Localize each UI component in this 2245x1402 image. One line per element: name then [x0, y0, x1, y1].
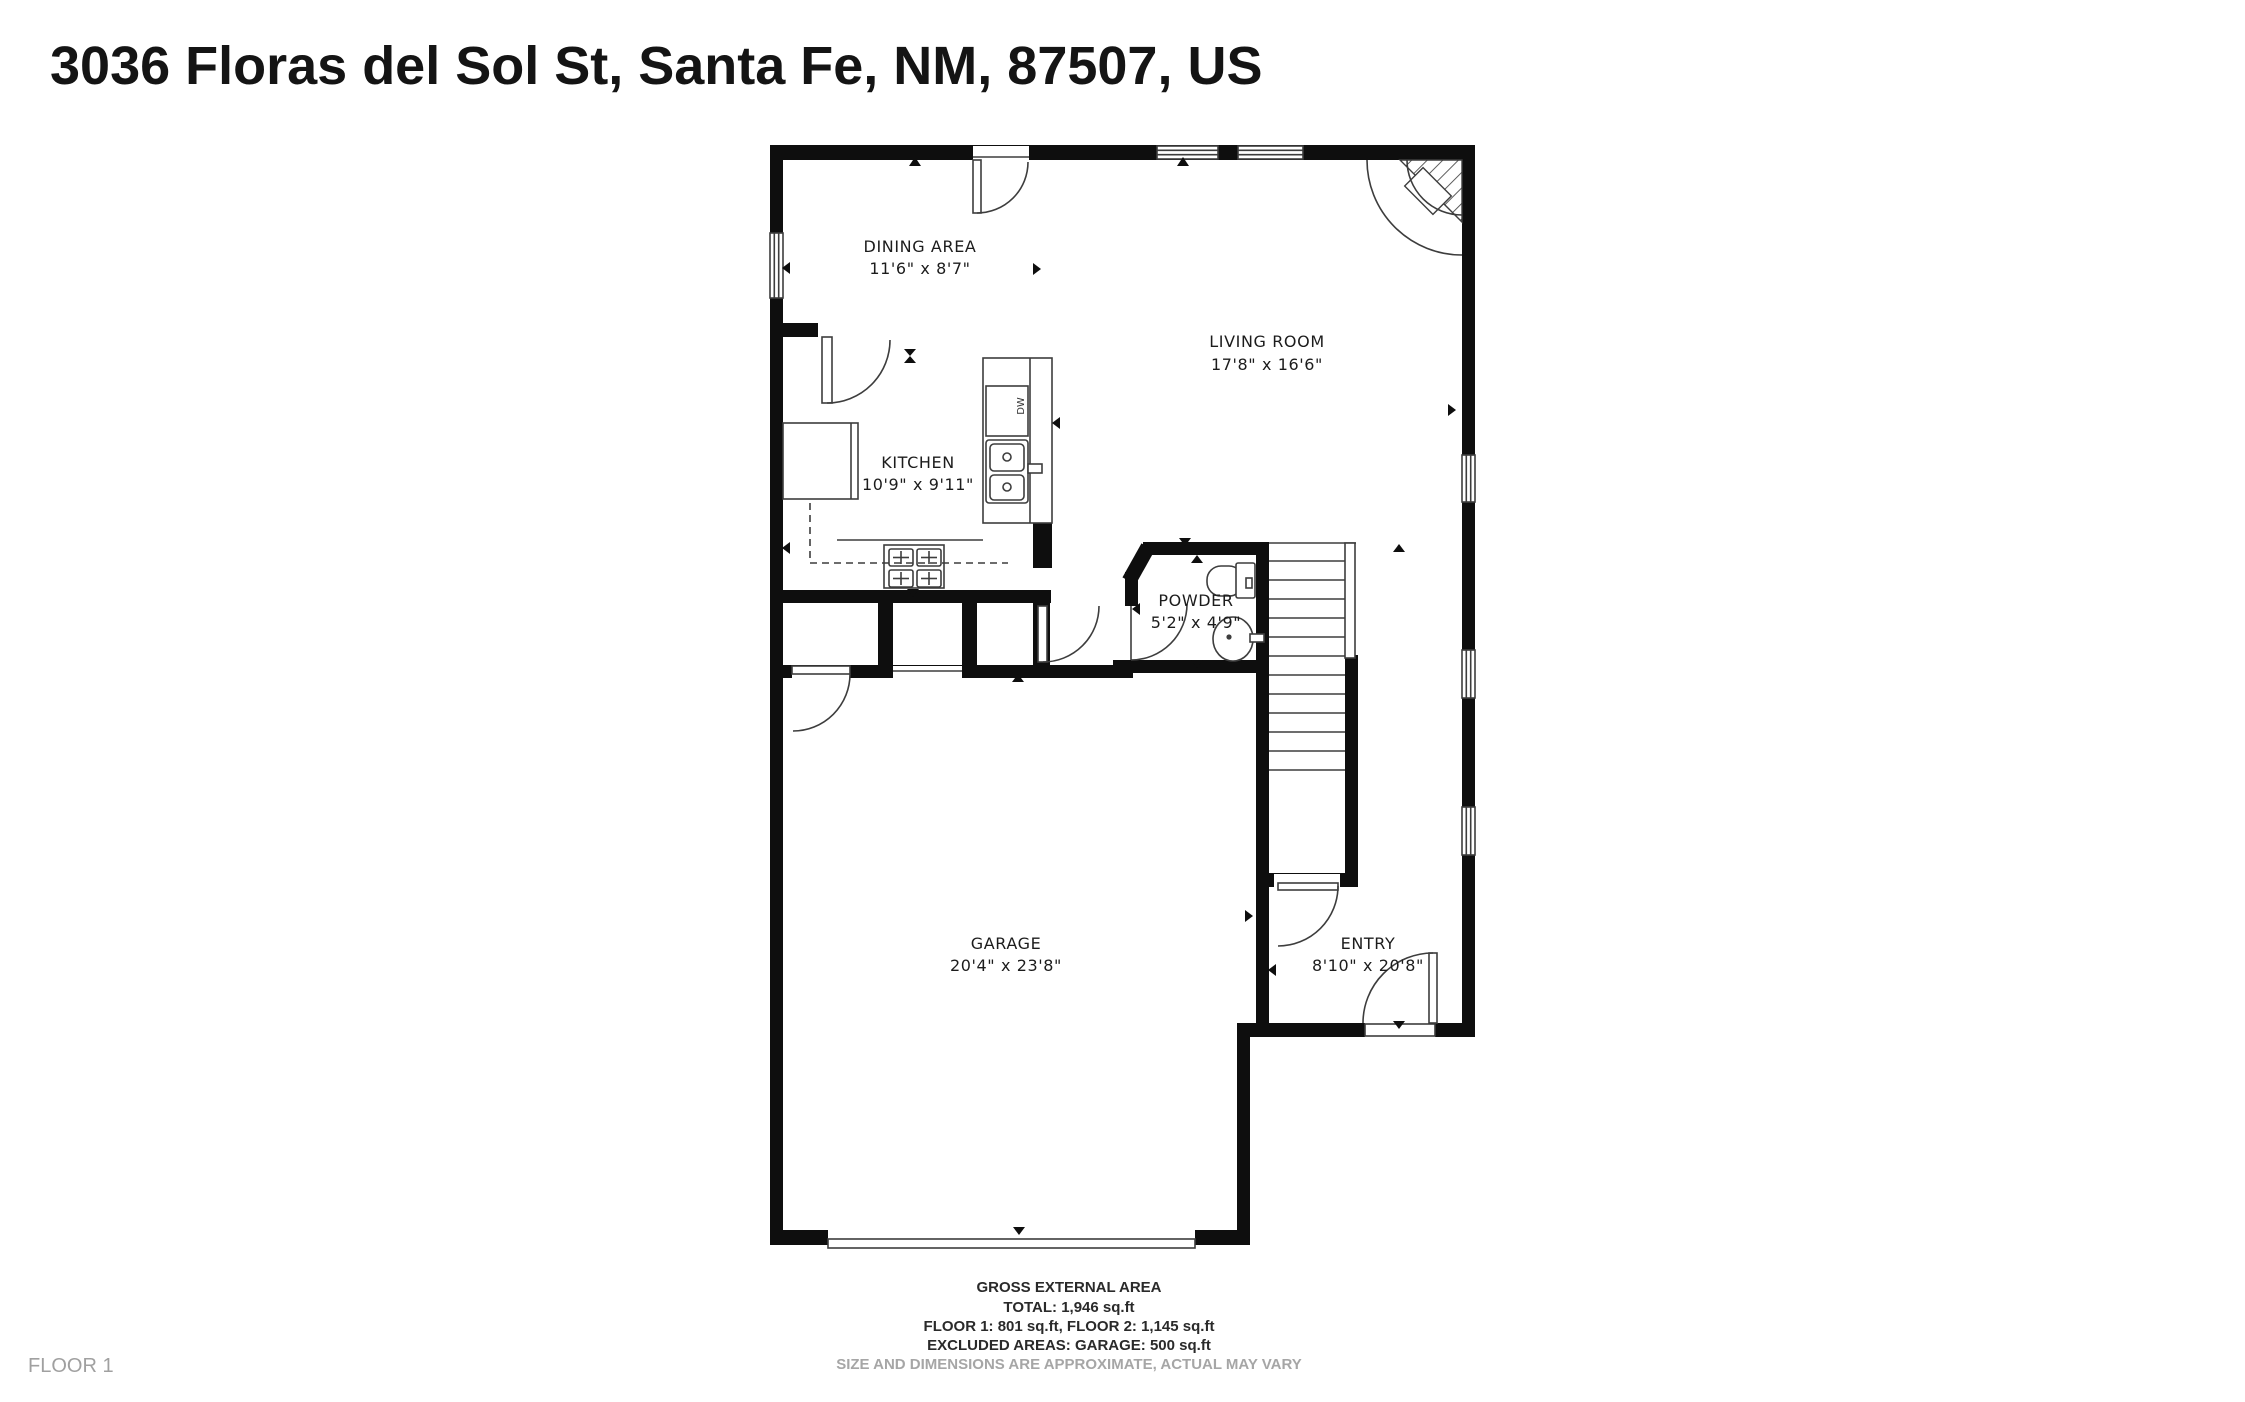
wall-right	[1462, 145, 1475, 1037]
garage-dims: 20'4" x 23'8"	[950, 956, 1062, 975]
refrigerator	[783, 423, 858, 499]
door-hall-closet	[1038, 606, 1099, 662]
wall-closet-divider-2	[962, 590, 977, 675]
window-left	[770, 233, 783, 298]
excluded-areas: EXCLUDED AREAS: GARAGE: 500 sq.ft	[927, 1337, 1211, 1354]
living-name: LIVING ROOM	[1209, 332, 1324, 351]
room-labels: DINING AREA 11'6" x 8'7" LIVING ROOM 17'…	[862, 237, 1424, 975]
floorplan-canvas: 3036 Floras del Sol St, Santa Fe, NM, 87…	[0, 0, 2245, 1402]
powder-name: POWDER	[1158, 591, 1233, 610]
window-top-2	[1238, 146, 1303, 159]
door-kitchen	[822, 337, 890, 403]
window-right-1	[1462, 455, 1475, 502]
wall-stairs-right	[1345, 655, 1358, 887]
wall-powder-left	[1125, 572, 1138, 606]
entry-dims: 8'10" x 20'8"	[1312, 956, 1424, 975]
wall-counter-stub	[1033, 522, 1052, 568]
window-right-2	[1462, 650, 1475, 698]
wall-left	[770, 145, 783, 1245]
entry-name: ENTRY	[1341, 934, 1396, 953]
wall-stairs-left	[1256, 542, 1269, 1037]
doors	[792, 146, 1437, 1248]
faucet	[1028, 464, 1042, 473]
door-understairs	[1274, 874, 1340, 946]
fireplace	[1367, 160, 1462, 255]
exterior-walls	[770, 145, 1475, 1245]
wall-dining-stub	[770, 323, 818, 337]
door-dining-exterior	[973, 146, 1029, 213]
wall-powder-bottom	[1113, 660, 1264, 673]
door-closet-bifold	[893, 666, 962, 678]
living-dims: 17'8" x 16'6"	[1211, 355, 1323, 374]
floor-number-label: FLOOR 1	[28, 1355, 114, 1377]
stair-railing	[1345, 543, 1355, 658]
powder-fixtures	[1207, 563, 1264, 661]
page-title: 3036 Floras del Sol St, Santa Fe, NM, 87…	[50, 36, 1262, 96]
door-garage	[792, 666, 850, 731]
total-area: TOTAL: 1,946 sq.ft	[1003, 1299, 1134, 1316]
door-garage-vehicle	[828, 1230, 1195, 1248]
wall-powder-top	[1143, 542, 1264, 555]
window-right-3	[1462, 807, 1475, 855]
dining-name: DINING AREA	[864, 237, 977, 256]
garage-name: GARAGE	[971, 934, 1042, 953]
kitchen-dims: 10'9" x 9'11"	[862, 475, 974, 494]
kitchen-name: KITCHEN	[881, 453, 955, 472]
floor-areas: FLOOR 1: 801 sq.ft, FLOOR 2: 1,145 sq.ft	[924, 1318, 1215, 1335]
stair-treads	[1269, 561, 1345, 770]
wall-top	[770, 145, 1475, 160]
floor-plan: DW	[770, 145, 1475, 1248]
window-top-1	[1157, 146, 1218, 159]
area-summary: GROSS EXTERNAL AREA TOTAL: 1,946 sq.ft F…	[836, 1279, 1302, 1373]
dining-dims: 11'6" x 8'7"	[869, 259, 970, 278]
wall-closet-divider-1	[878, 590, 893, 675]
powder-dims: 5'2" x 4'9"	[1151, 613, 1241, 632]
wall-garage-right	[1237, 1023, 1250, 1245]
wall-entry-bottom	[1237, 1023, 1475, 1037]
gross-area-heading: GROSS EXTERNAL AREA	[976, 1279, 1161, 1296]
stairs	[1269, 543, 1356, 770]
disclaimer: SIZE AND DIMENSIONS ARE APPROXIMATE, ACT…	[836, 1356, 1302, 1373]
stove	[884, 545, 944, 588]
dishwasher-label: DW	[1016, 397, 1027, 415]
